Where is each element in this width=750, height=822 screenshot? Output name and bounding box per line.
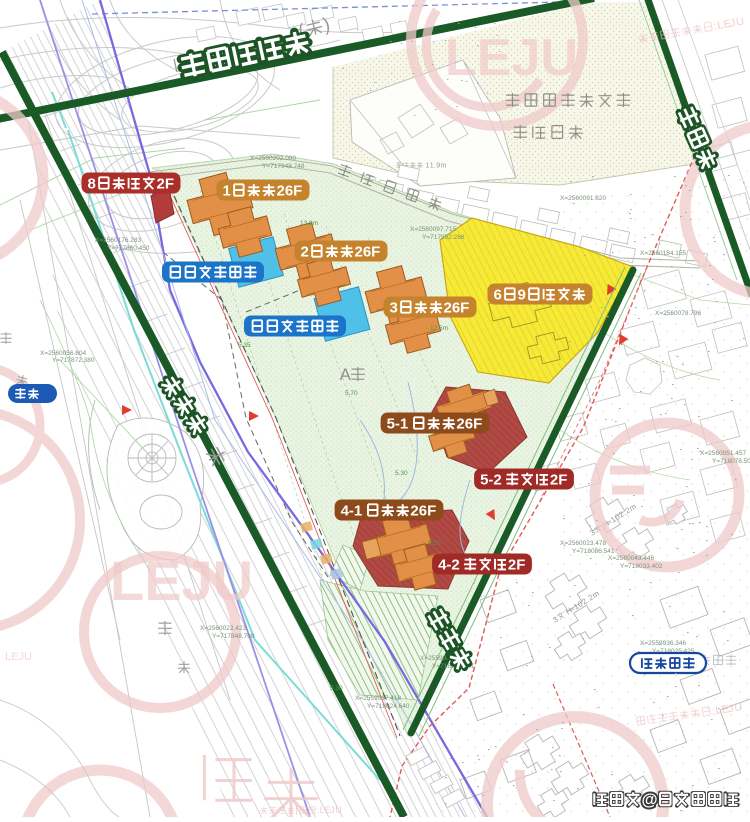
svg-text:X=2560202.090: X=2560202.090 — [250, 155, 296, 162]
svg-text:Y=718086.541: Y=718086.541 — [572, 548, 615, 555]
svg-text:U: U — [335, 805, 342, 815]
svg-text:Y=718024.640: Y=718024.640 — [367, 703, 410, 710]
svg-text:X=2560097.715: X=2560097.715 — [410, 226, 456, 233]
svg-text:12.5m: 12.5m — [430, 325, 448, 332]
svg-text:X=2560176.283: X=2560176.283 — [95, 237, 141, 244]
svg-text:26F: 26F — [456, 415, 482, 432]
svg-text:X=2560078.796: X=2560078.796 — [655, 310, 701, 317]
svg-text:5.30: 5.30 — [330, 685, 343, 692]
svg-text:6: 6 — [494, 286, 502, 303]
svg-text:X=2560184.155: X=2560184.155 — [640, 250, 686, 257]
svg-text:@: @ — [642, 791, 658, 809]
svg-text:J: J — [330, 805, 335, 815]
svg-text:26F: 26F — [277, 182, 303, 199]
svg-text:LEJU: LEJU — [110, 549, 253, 612]
svg-text:Y=718078.508: Y=718078.508 — [712, 458, 750, 465]
svg-text:3: 3 — [390, 299, 398, 316]
svg-text:5-2: 5-2 — [480, 471, 502, 488]
svg-text:2: 2 — [301, 243, 309, 260]
svg-text:2F: 2F — [508, 556, 526, 573]
svg-text:X=2559936.346: X=2559936.346 — [640, 640, 686, 647]
svg-text:LEJU: LEJU — [5, 651, 32, 663]
svg-text:2F: 2F — [550, 471, 568, 488]
svg-text:26F: 26F — [355, 243, 381, 260]
svg-text:26F: 26F — [444, 299, 470, 316]
svg-text:X=2560056.804: X=2560056.804 — [40, 350, 86, 357]
svg-text:8: 8 — [88, 175, 96, 192]
svg-text:5.70: 5.70 — [345, 390, 358, 397]
svg-text:X=2560043.446: X=2560043.446 — [608, 555, 654, 562]
svg-text:LEJU: LEJU — [445, 29, 578, 87]
svg-text:m: m — [441, 163, 447, 170]
svg-text:Y=717860.450: Y=717860.450 — [107, 245, 150, 252]
svg-text:Y=717848.708: Y=717848.708 — [212, 633, 255, 640]
svg-text:X=2560023.478: X=2560023.478 — [560, 540, 606, 547]
svg-text:Y=717948.748: Y=717948.748 — [262, 163, 305, 170]
svg-text:5.50: 5.50 — [428, 540, 441, 547]
svg-text:X=2560022.423: X=2560022.423 — [200, 625, 246, 632]
svg-text:Y=718033.402: Y=718033.402 — [620, 563, 663, 570]
svg-text:26F: 26F — [410, 502, 436, 519]
svg-text:4-2: 4-2 — [438, 556, 460, 573]
svg-text:Y=717952.286: Y=717952.286 — [422, 234, 465, 241]
svg-text:1: 1 — [223, 182, 231, 199]
svg-text:4-1: 4-1 — [341, 502, 363, 519]
svg-text:A: A — [340, 365, 352, 384]
svg-text:X=2560051.457: X=2560051.457 — [700, 450, 746, 457]
svg-text:5-1: 5-1 — [387, 415, 409, 432]
svg-text:5.35: 5.35 — [238, 342, 251, 349]
svg-text:5.30: 5.30 — [395, 470, 408, 477]
svg-text:U: U — [734, 701, 744, 714]
svg-text:9: 9 — [518, 286, 526, 303]
svg-text:2F: 2F — [157, 175, 175, 192]
svg-text:|: | — [296, 805, 298, 815]
svg-text:X=2560091.620: X=2560091.620 — [560, 195, 606, 202]
svg-text:13.0m: 13.0m — [300, 220, 318, 227]
svg-text:X=2559937.418: X=2559937.418 — [355, 695, 401, 702]
svg-text:Y=717872.380: Y=717872.380 — [52, 357, 95, 364]
